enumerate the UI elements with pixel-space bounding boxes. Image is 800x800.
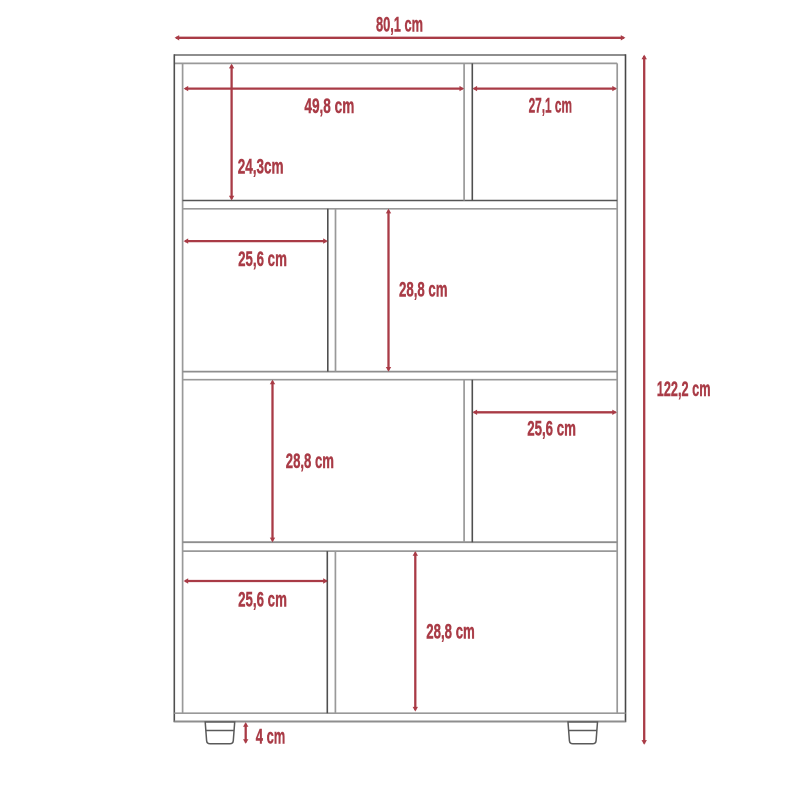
svg-text:25,6 cm: 25,6 cm	[238, 588, 287, 612]
svg-text:25,6 cm: 25,6 cm	[527, 417, 576, 441]
svg-text:28,8 cm: 28,8 cm	[399, 278, 448, 302]
svg-text:28,8 cm: 28,8 cm	[426, 619, 475, 643]
svg-text:24,3cm: 24,3cm	[238, 155, 284, 179]
svg-text:80,1 cm: 80,1 cm	[376, 13, 423, 37]
svg-text:4 cm: 4 cm	[256, 725, 285, 749]
svg-text:122,2 cm: 122,2 cm	[657, 377, 711, 401]
svg-text:28,8 cm: 28,8 cm	[286, 449, 334, 473]
svg-text:27,1 cm: 27,1 cm	[529, 94, 572, 118]
svg-text:49,8 cm: 49,8 cm	[304, 94, 354, 118]
svg-text:25,6 cm: 25,6 cm	[238, 247, 287, 271]
